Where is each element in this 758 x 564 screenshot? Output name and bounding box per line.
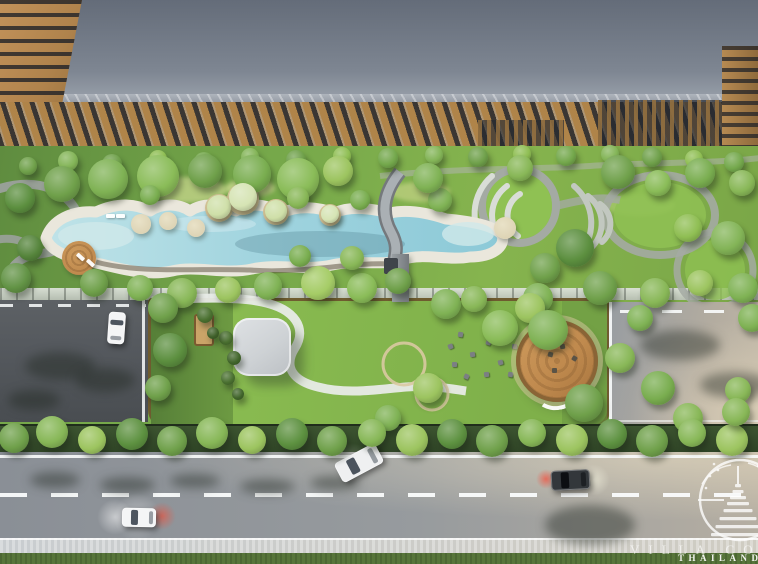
car-windshield — [345, 456, 361, 475]
car-windshield — [110, 319, 123, 326]
tree — [350, 190, 370, 210]
tree — [678, 419, 706, 447]
tree — [17, 235, 43, 261]
tree — [19, 157, 37, 175]
tree — [528, 310, 568, 350]
tree — [716, 424, 748, 456]
tree — [78, 426, 106, 454]
tree — [687, 270, 713, 296]
tree — [507, 155, 533, 181]
tree — [232, 388, 244, 400]
tree — [437, 419, 467, 449]
tree — [413, 163, 443, 193]
tree — [265, 200, 287, 222]
pool-edge-deck — [494, 217, 516, 239]
tree — [317, 426, 347, 456]
tree — [219, 331, 233, 345]
tree — [207, 195, 231, 219]
tree-shadow — [545, 505, 635, 545]
driveway-curb-line — [142, 300, 145, 422]
tree-shadow — [640, 330, 720, 360]
tree — [468, 147, 488, 167]
pool-edge-deck — [187, 219, 205, 237]
tree — [627, 305, 653, 331]
tree — [276, 418, 308, 450]
sun-lounger — [116, 214, 125, 218]
tree — [476, 425, 508, 457]
tree — [157, 426, 187, 456]
tree — [323, 156, 353, 186]
tree — [197, 307, 213, 323]
tree — [636, 425, 668, 457]
tree — [385, 268, 411, 294]
tree — [153, 333, 187, 367]
tree — [674, 214, 702, 242]
tree — [347, 273, 377, 303]
brand-country-text: THAILAND — [678, 553, 758, 563]
lawn-seat — [512, 344, 518, 350]
tree-shadow — [30, 472, 80, 488]
tree — [729, 170, 755, 196]
tree — [724, 152, 744, 172]
car — [107, 311, 126, 344]
tree — [5, 183, 35, 213]
lawn-seat — [508, 372, 514, 378]
tree — [340, 246, 364, 270]
tree — [140, 185, 160, 205]
lawn-seat — [458, 332, 464, 338]
tree — [605, 343, 635, 373]
tree — [530, 253, 560, 283]
sun-lounger — [106, 214, 115, 218]
tree — [642, 147, 662, 167]
tree — [601, 155, 635, 189]
tree — [378, 148, 398, 168]
lawn-seat — [470, 352, 476, 358]
tree-shadow — [100, 477, 155, 493]
tree — [321, 205, 339, 223]
car — [551, 469, 591, 491]
tree — [722, 398, 750, 426]
tree — [482, 310, 518, 346]
driveway-lane-marking — [0, 304, 146, 307]
car-rear-window — [581, 472, 586, 486]
deck-seat — [552, 368, 557, 373]
tree — [229, 183, 257, 211]
pavilion-canopy — [233, 318, 291, 376]
tree-shadow — [240, 479, 295, 494]
tree — [127, 275, 153, 301]
tree — [44, 166, 80, 202]
tree — [556, 229, 594, 267]
tree — [640, 278, 670, 308]
car-windshield — [131, 510, 138, 525]
car-rear-window — [148, 511, 152, 524]
tree — [148, 293, 178, 323]
tree — [728, 273, 758, 303]
tree — [145, 375, 171, 401]
tree — [641, 371, 675, 405]
tree — [738, 304, 758, 332]
tree — [685, 158, 715, 188]
tree — [518, 419, 546, 447]
tree — [301, 266, 335, 300]
tree — [711, 221, 745, 255]
tree — [88, 159, 128, 199]
tree — [396, 424, 428, 456]
tree — [227, 351, 241, 365]
tree — [425, 146, 443, 164]
pool-edge-deck — [131, 214, 151, 234]
tree — [565, 384, 603, 422]
tree — [556, 424, 588, 456]
tree — [196, 417, 228, 449]
tree — [116, 418, 148, 450]
road-center-dashes — [0, 493, 758, 497]
tree — [289, 245, 311, 267]
tree — [221, 371, 235, 385]
tree — [80, 269, 108, 297]
tree-shadow — [8, 390, 60, 410]
tree — [645, 170, 671, 196]
tree — [597, 419, 627, 449]
lawn-seat — [484, 372, 489, 377]
tree — [583, 271, 617, 305]
tree — [0, 423, 29, 453]
tree — [1, 263, 31, 293]
tree — [413, 373, 443, 403]
lawn-seat — [452, 362, 457, 367]
tree-shadow — [75, 368, 135, 392]
tree — [358, 419, 386, 447]
tree — [36, 416, 68, 448]
tree — [238, 426, 266, 454]
tree — [431, 289, 461, 319]
car — [122, 508, 156, 528]
tree — [215, 277, 241, 303]
car-rear-window — [367, 448, 379, 464]
car-windshield — [561, 472, 570, 488]
car-rear-window — [110, 336, 122, 341]
render-canvas: VILLA CO THAILAND — [0, 0, 758, 564]
tree — [254, 272, 282, 300]
tree — [461, 286, 487, 312]
tree — [556, 146, 576, 166]
tree — [287, 187, 309, 209]
pool-edge-deck — [159, 212, 177, 230]
tree — [188, 154, 222, 188]
tree — [207, 327, 219, 339]
tree-shadow — [170, 474, 220, 488]
